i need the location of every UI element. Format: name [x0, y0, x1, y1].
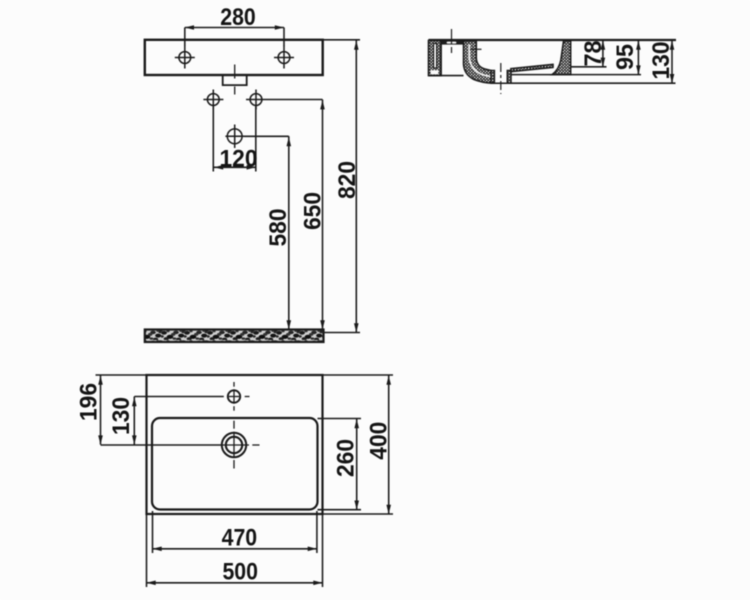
svg-text:130: 130 — [108, 397, 135, 435]
svg-text:280: 280 — [220, 4, 256, 31]
svg-text:470: 470 — [222, 525, 258, 552]
svg-text:260: 260 — [332, 439, 359, 477]
svg-text:130: 130 — [648, 42, 675, 80]
svg-text:500: 500 — [222, 559, 258, 586]
svg-text:650: 650 — [300, 192, 327, 230]
svg-text:196: 196 — [76, 383, 103, 421]
svg-text:820: 820 — [334, 161, 361, 199]
svg-text:120: 120 — [220, 146, 258, 173]
svg-text:95: 95 — [612, 44, 639, 70]
svg-text:400: 400 — [366, 422, 393, 460]
svg-text:78: 78 — [580, 41, 607, 67]
svg-text:580: 580 — [265, 209, 292, 247]
